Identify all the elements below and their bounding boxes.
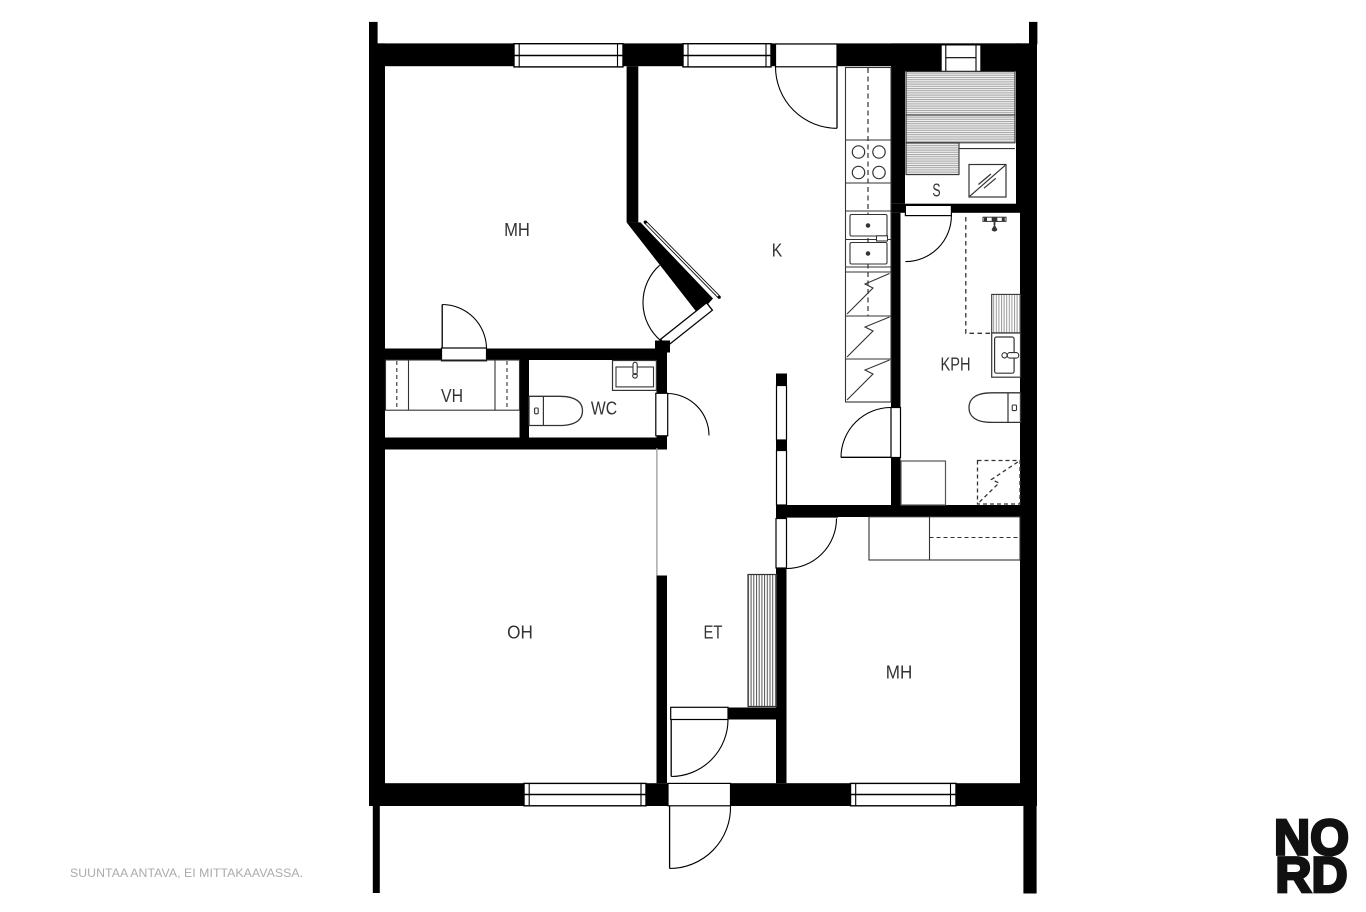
svg-text:MH: MH — [886, 663, 913, 683]
svg-text:KPH: KPH — [941, 355, 971, 375]
svg-text:S: S — [932, 181, 940, 201]
svg-text:SUUNTAA ANTAVA, EI MITTAKAAVAS: SUUNTAA ANTAVA, EI MITTAKAAVASSA. — [70, 866, 303, 880]
svg-text:K: K — [772, 241, 783, 261]
svg-text:WC: WC — [591, 399, 617, 419]
svg-text:VH: VH — [441, 386, 463, 406]
svg-text:ET: ET — [704, 623, 723, 643]
svg-text:MH: MH — [504, 220, 530, 240]
svg-text:RD: RD — [1275, 847, 1347, 903]
svg-text:OH: OH — [507, 623, 533, 643]
